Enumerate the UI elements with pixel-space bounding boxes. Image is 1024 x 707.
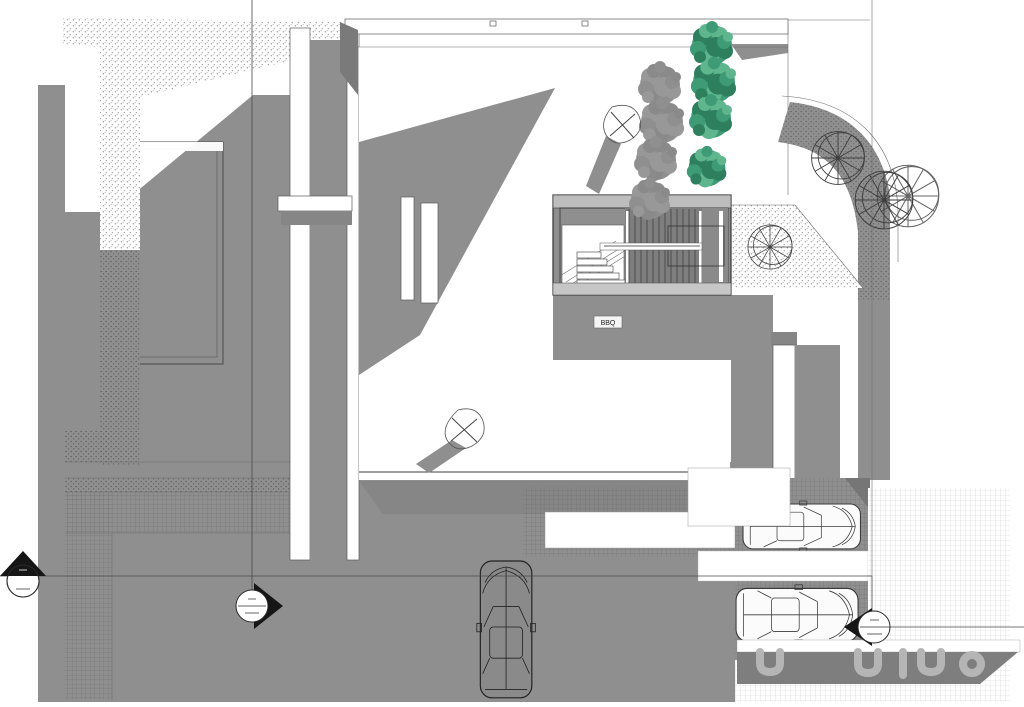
site-plan-canvas: BBQ <box>0 0 1024 707</box>
plan-tree-icon <box>877 165 938 226</box>
bbq-label: BBQ <box>594 316 622 328</box>
upper-slab-edge <box>688 468 790 526</box>
wall-fin <box>421 203 438 303</box>
left-boundary-wall <box>38 85 65 465</box>
left-wing-roof <box>65 95 290 480</box>
west-wall-strips <box>278 28 359 560</box>
plan-tree-icon <box>812 132 865 185</box>
stair-handrail <box>600 243 702 250</box>
plan-tree-icon <box>748 225 792 269</box>
bbq-terrace <box>553 295 731 360</box>
wall-fin <box>401 197 414 300</box>
site-plan-drawing: BBQ <box>0 0 1024 707</box>
link-beam <box>278 196 352 211</box>
parked-car <box>736 585 858 645</box>
plan-tree-icon <box>855 171 913 229</box>
driveway-car <box>477 561 536 698</box>
bbq-label-text: BBQ <box>601 320 616 327</box>
